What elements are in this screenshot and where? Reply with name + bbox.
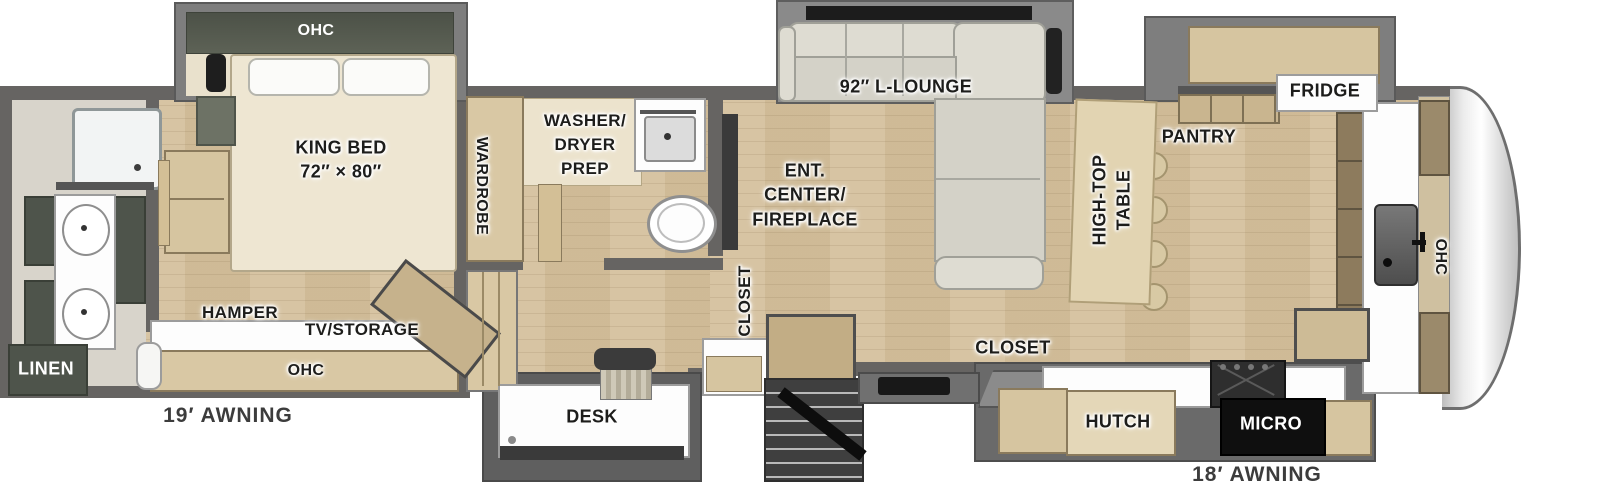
label-ent-3: FIREPLACE [752, 210, 858, 231]
label-awning-left: 19′ AWNING [163, 404, 293, 428]
kitchen-end-cabinet [1294, 308, 1370, 362]
midbath-sink [644, 116, 696, 162]
label-fridge: FRIDGE [1290, 81, 1360, 102]
step-line [498, 272, 500, 386]
pillow [342, 58, 430, 96]
sink-drain-icon [664, 133, 671, 140]
kitchen-slide-cabinet [1324, 400, 1372, 456]
vanity-cabinet [24, 196, 58, 266]
label-wardrobe: WARDROBE [472, 137, 490, 235]
label-micro: MICRO [1240, 414, 1302, 435]
front-cap [1442, 86, 1521, 410]
ent-center-fireplace-unit [722, 114, 738, 250]
counter-sink-inset [878, 377, 950, 395]
shower-curb [56, 182, 154, 190]
label-hutch: HUTCH [1086, 412, 1151, 433]
label-king-bed-size: 72″ × 80″ [300, 162, 381, 183]
hamper-bin [136, 342, 162, 390]
pillow [248, 58, 340, 96]
label-desk: DESK [566, 407, 618, 428]
label-ohc-front: OHC [1431, 239, 1449, 276]
label-closet-kitchen: CLOSET [975, 338, 1050, 359]
faucet-icon [640, 110, 696, 114]
label-king-bed: KING BED [295, 138, 386, 159]
label-pantry: PANTRY [1162, 127, 1236, 148]
label-hamper: HAMPER [202, 303, 278, 323]
stove-knobs-icon [1220, 364, 1226, 370]
bath-tall-cabinet [112, 196, 146, 304]
label-lounge: 92″ L-LOUNGE [840, 77, 972, 98]
slide-window-icon [206, 54, 226, 92]
front-ohc-cabinet [1419, 312, 1450, 394]
entry-closet-front [706, 356, 762, 392]
label-washer-2: DRYER [555, 135, 616, 155]
sofa-arm-bottom [934, 256, 1044, 290]
dresser [164, 150, 230, 254]
dresser-divider [166, 198, 224, 200]
label-ohc-rear: OHC [288, 362, 325, 380]
front-ohc-cabinet [1419, 100, 1450, 176]
kitchen-sink [1374, 204, 1418, 286]
step-line [482, 272, 484, 386]
sofa-seam [936, 178, 1040, 180]
label-linen: LINEN [18, 359, 74, 380]
sink-drain-icon [81, 225, 87, 231]
toilet-rim [657, 203, 705, 243]
pantry-cabinets [1178, 94, 1280, 124]
faucet-icon [1420, 232, 1425, 252]
sofa-chaise [934, 98, 1046, 262]
label-ohc-bedroom: OHC [298, 22, 335, 40]
desk-grommet-icon [508, 436, 516, 444]
label-awning-right: 18′ AWNING [1192, 463, 1322, 487]
label-washer-1: WASHER/ [544, 111, 626, 131]
sink-drain-icon [81, 309, 87, 315]
label-ent-2: CENTER/ [764, 185, 846, 206]
nightstand [196, 96, 236, 146]
sofa-arm-left [778, 26, 796, 102]
label-hightop-2: TABLE [1114, 170, 1135, 231]
shower [72, 108, 162, 190]
wall-midbath-bottom-b [604, 258, 723, 270]
entry-landing [766, 314, 856, 384]
bedroom-door [158, 160, 170, 246]
slide-window-icon [1046, 28, 1062, 94]
label-ent-1: ENT. [785, 161, 826, 182]
vanity-cabinet [24, 280, 58, 348]
lounge-tv-strip [806, 6, 1032, 20]
label-hightop-1: HIGH-TOP [1090, 155, 1111, 246]
floorplan-canvas: OHC KING BED 72″ × 80″ WARDROBE WASHER/ … [0, 0, 1600, 487]
desk-chair-back [594, 348, 656, 370]
label-closet-entry: CLOSET [735, 265, 755, 336]
label-tv-storage: TV/STORAGE [305, 320, 419, 340]
midbath-door [538, 184, 562, 262]
label-washer-3: PREP [561, 159, 609, 179]
sofa-back-cushions [788, 22, 962, 60]
desk-front-edge [500, 446, 684, 460]
shower-drain-icon [134, 164, 141, 171]
kitchen-slide-cabinet [998, 388, 1068, 454]
sink-drain-icon [1383, 258, 1392, 267]
